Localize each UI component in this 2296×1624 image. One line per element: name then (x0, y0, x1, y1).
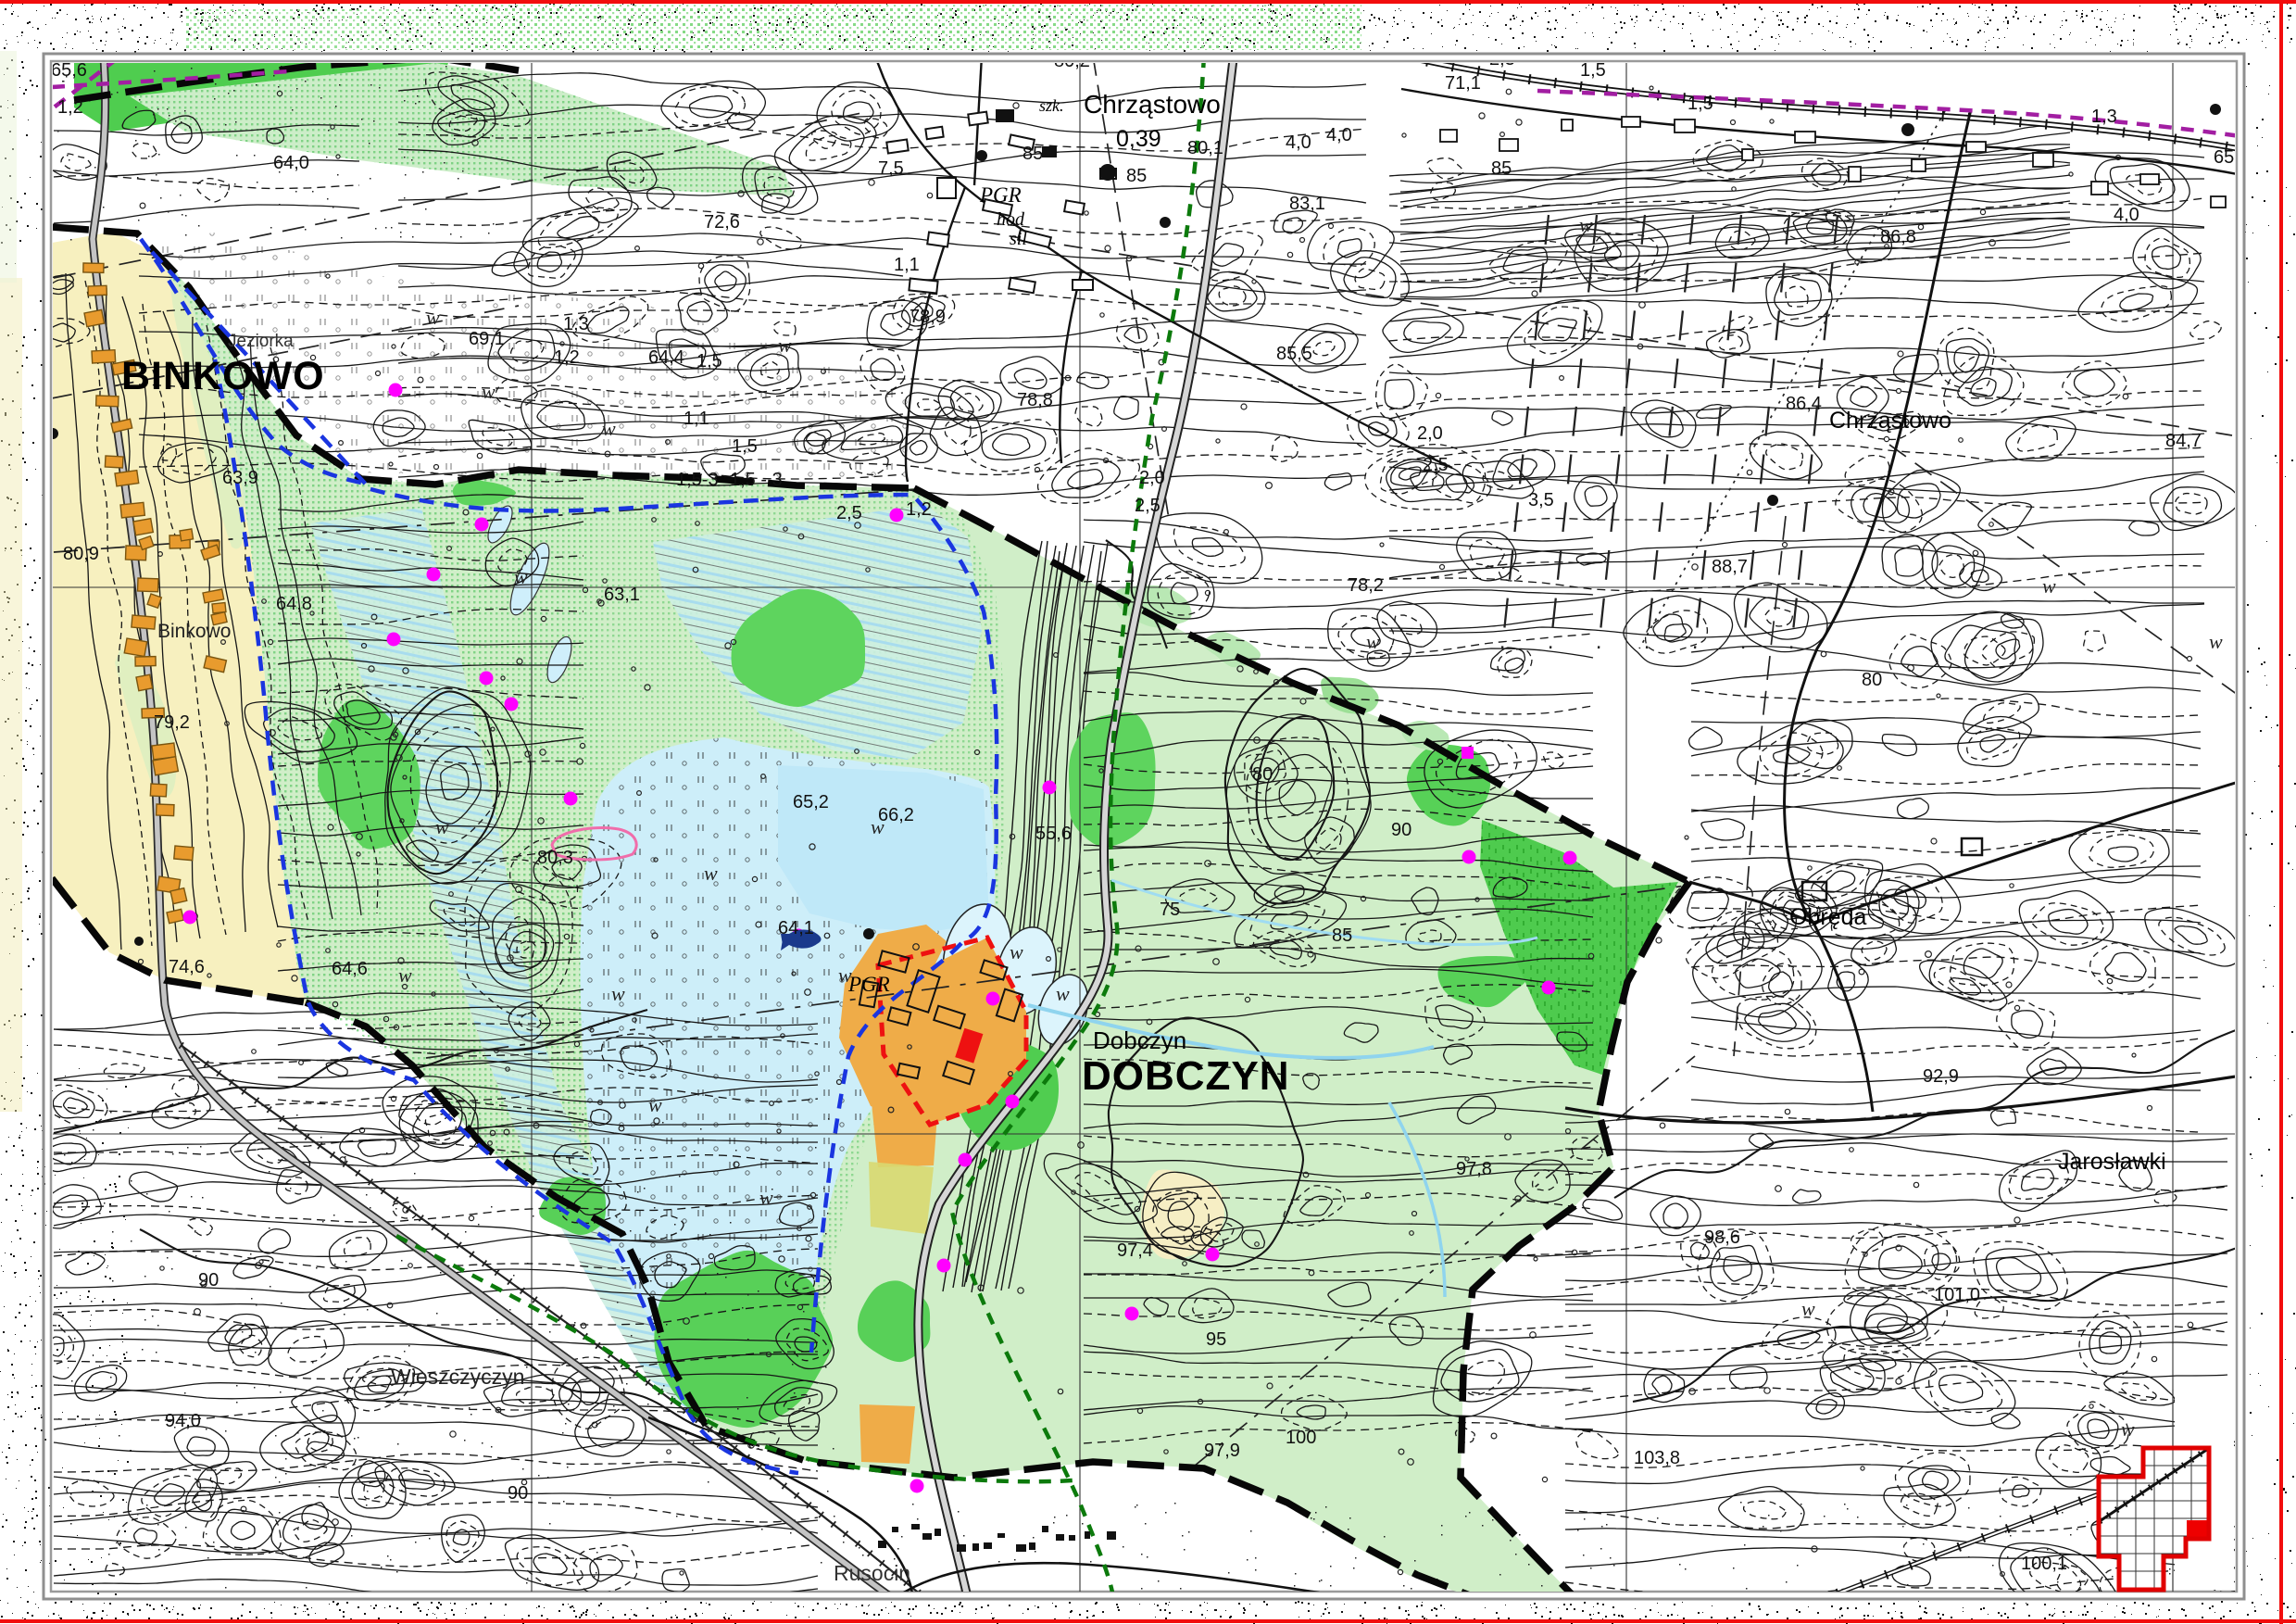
svg-text:DOBCZYN: DOBCZYN (1082, 1053, 1290, 1099)
svg-text:85: 85 (1491, 158, 1512, 179)
svg-text:83,1: 83,1 (1289, 194, 1325, 214)
svg-text:Jarosławki: Jarosławki (2058, 1149, 2166, 1175)
svg-text:86,8: 86,8 (1880, 227, 1916, 247)
svg-text:78,2: 78,2 (1348, 575, 1384, 596)
svg-text:64,0: 64,0 (273, 153, 309, 173)
svg-text:66,2: 66,2 (878, 805, 914, 825)
svg-text:w: w (1366, 630, 1380, 653)
svg-text:Wieszczyczyn: Wieszczyczyn (391, 1365, 524, 1389)
svg-text:90: 90 (198, 1270, 219, 1290)
svg-text:w: w (398, 963, 412, 987)
svg-text:97,9: 97,9 (1204, 1441, 1240, 1461)
svg-text:2,0: 2,0 (1417, 423, 1443, 444)
svg-text:w: w (1579, 213, 1593, 236)
svg-text:BINKOWO: BINKOWO (121, 354, 325, 398)
svg-text:1,3: 1,3 (2091, 107, 2117, 127)
svg-text:71,1: 71,1 (1445, 73, 1481, 94)
svg-text:98,6: 98,6 (1704, 1227, 1740, 1248)
svg-text:84,7: 84,7 (2165, 431, 2202, 451)
svg-text:w: w (1010, 940, 1023, 963)
svg-text:Rusocin: Rusocin (834, 1561, 910, 1585)
svg-text:72,6: 72,6 (704, 212, 740, 233)
svg-text:80,1: 80,1 (1187, 138, 1223, 158)
svg-text:86,4: 86,4 (1786, 394, 1822, 414)
svg-text:92,9: 92,9 (1923, 1066, 1959, 1087)
svg-text:101,0: 101,0 (1934, 1285, 1980, 1305)
svg-text:2,5: 2,5 (1135, 496, 1161, 516)
svg-text:95: 95 (1206, 1329, 1226, 1350)
svg-text:w: w (426, 306, 440, 329)
svg-text:80,9: 80,9 (63, 544, 99, 564)
svg-text:80: 80 (1862, 670, 1882, 690)
svg-text:100: 100 (1286, 1428, 1316, 1448)
svg-text:80,3: 80,3 (537, 848, 573, 868)
svg-text:1,5: 1,5 (1687, 94, 1713, 114)
svg-text:w: w (2042, 574, 2056, 598)
svg-text:PGR: PGR (847, 973, 890, 996)
svg-text:1,3: 1,3 (563, 314, 589, 334)
svg-text:85: 85 (1332, 925, 1352, 946)
svg-text:1,5 - 3: 1,5 - 3 (730, 470, 783, 490)
svg-text:79,2: 79,2 (154, 712, 190, 733)
svg-text:88,7: 88,7 (1712, 557, 1748, 577)
svg-text:78,9: 78,9 (910, 307, 946, 327)
svg-text:3,5: 3,5 (1528, 490, 1554, 510)
svg-text:1,5: 1,5 (1580, 60, 1606, 81)
svg-text:Jeziorka: Jeziorka (228, 332, 294, 351)
svg-text:85: 85 (1023, 144, 1043, 164)
svg-text:1,2: 1,2 (57, 97, 83, 118)
svg-text:2,5: 2,5 (1423, 455, 1449, 475)
svg-text:55,6: 55,6 (1035, 824, 1072, 844)
svg-text:85,5: 85,5 (1276, 344, 1312, 364)
svg-text:w: w (1801, 1297, 1815, 1320)
svg-text:w: w (704, 862, 718, 885)
svg-text:103,8: 103,8 (1634, 1448, 1680, 1468)
svg-text:hod: hod (997, 209, 1025, 230)
svg-text:2,0: 2,0 (1139, 468, 1165, 488)
svg-text:Chrząstowo: Chrząstowo (1084, 90, 1221, 119)
svg-text:7,5: 7,5 (878, 158, 904, 179)
svg-text:1,5: 1,5 (732, 436, 758, 457)
svg-text:Chrząstowo: Chrząstowo (1829, 408, 1951, 434)
svg-text:w: w (2121, 1417, 2135, 1441)
svg-text:w: w (611, 982, 625, 1005)
svg-text:97,4: 97,4 (1117, 1240, 1153, 1261)
svg-text:64,4: 64,4 (648, 347, 684, 368)
svg-text:69,1: 69,1 (469, 329, 505, 349)
svg-text:63,9: 63,9 (222, 468, 258, 488)
svg-text:w: w (435, 815, 449, 838)
svg-text:78,8: 78,8 (1017, 390, 1053, 410)
svg-text:PGR: PGR (979, 183, 1022, 207)
svg-text:64,1: 64,1 (778, 918, 814, 938)
svg-text:w: w (759, 1186, 773, 1209)
svg-text:w: w (778, 334, 792, 357)
svg-text:100,1: 100,1 (2021, 1554, 2067, 1574)
svg-text:1,1: 1,1 (894, 255, 920, 275)
svg-text:2,5: 2,5 (836, 503, 862, 523)
svg-text:80: 80 (1252, 764, 1273, 785)
svg-text:4,0: 4,0 (1286, 132, 1311, 153)
svg-text:94,0: 94,0 (165, 1411, 201, 1431)
svg-text:74,6: 74,6 (169, 957, 205, 977)
svg-text:64,6: 64,6 (332, 959, 368, 979)
svg-text:1,5: 1,5 (696, 351, 722, 371)
svg-text:sil: sil (1010, 229, 1027, 249)
svg-text:65,2: 65,2 (793, 792, 829, 812)
svg-text:90: 90 (1391, 820, 1411, 840)
svg-text:w: w (602, 417, 616, 440)
svg-text:4,0: 4,0 (1326, 125, 1352, 145)
svg-text:szk.: szk. (1039, 96, 1064, 115)
svg-text:w: w (482, 380, 496, 403)
svg-text:85: 85 (1126, 166, 1147, 186)
svg-text:4,0: 4,0 (2114, 205, 2139, 225)
svg-text:90: 90 (508, 1483, 528, 1504)
svg-text:w: w (2209, 630, 2223, 653)
svg-text:97,8: 97,8 (1456, 1159, 1492, 1179)
svg-text:1,1: 1,1 (684, 409, 709, 429)
svg-text:63,1: 63,1 (604, 585, 640, 605)
svg-text:1,5-3: 1,5-3 (676, 470, 719, 490)
svg-text:1,2: 1,2 (906, 499, 932, 520)
svg-text:w: w (648, 1093, 662, 1116)
svg-text:w: w (514, 565, 528, 588)
svg-text:0,39: 0,39 (1116, 126, 1161, 152)
svg-text:Obręda: Obręda (1789, 904, 1866, 930)
svg-text:Dobczyn: Dobczyn (1093, 1026, 1186, 1054)
svg-text:64,8: 64,8 (276, 594, 312, 614)
svg-text:Binkowo: Binkowo (157, 621, 231, 642)
svg-text:1,2: 1,2 (554, 347, 580, 368)
svg-text:75: 75 (1160, 900, 1180, 920)
svg-text:w: w (1056, 982, 1070, 1005)
